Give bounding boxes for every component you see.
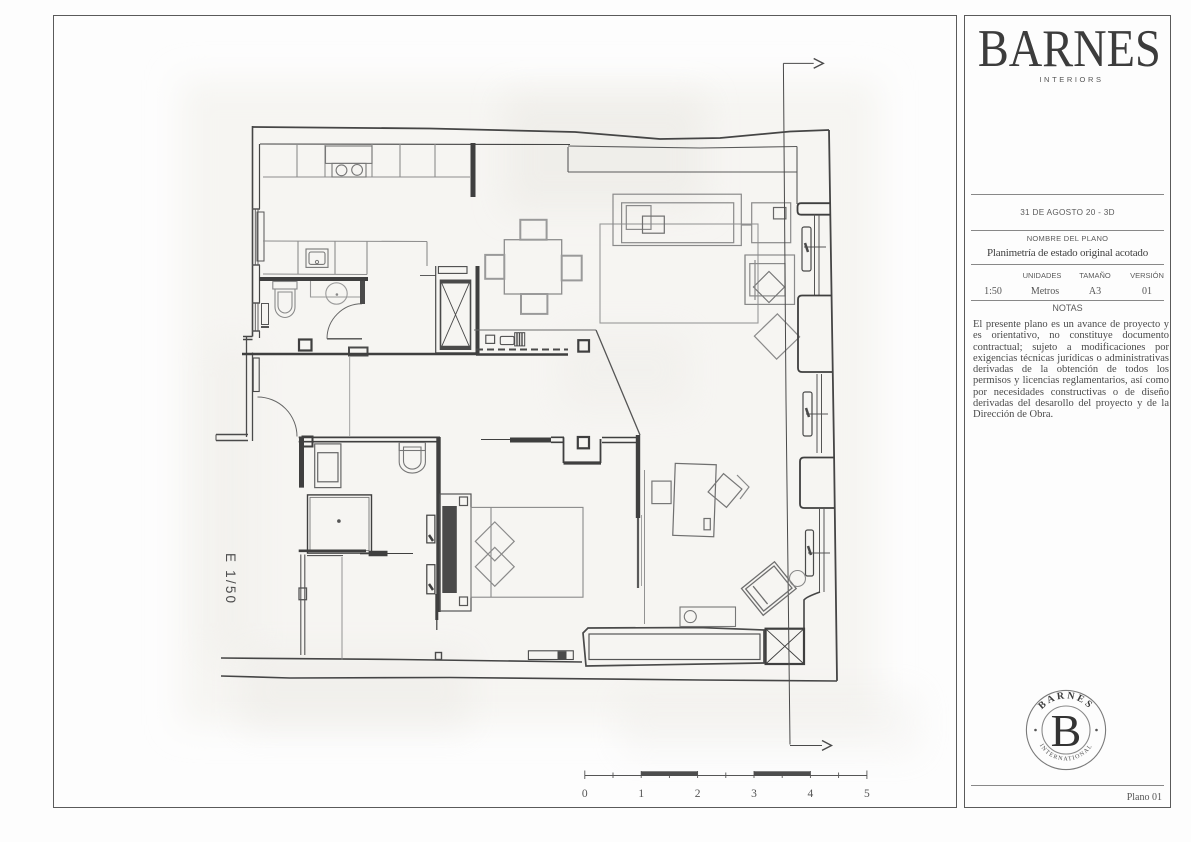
svg-text:3: 3	[751, 788, 757, 800]
svg-text:2: 2	[695, 788, 701, 800]
svg-text:4: 4	[808, 788, 814, 800]
svg-text:1: 1	[638, 788, 644, 800]
svg-text:5: 5	[864, 788, 870, 800]
svg-text:B: B	[1051, 705, 1082, 756]
svg-text:0: 0	[582, 788, 588, 800]
